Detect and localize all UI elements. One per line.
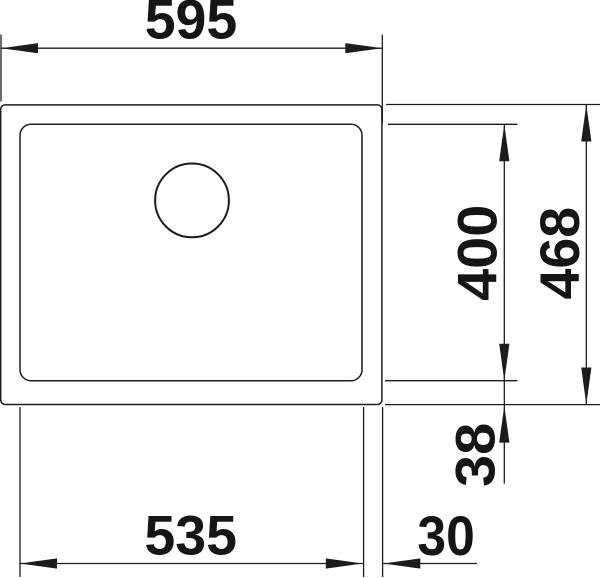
- svg-text:468: 468: [529, 207, 591, 300]
- svg-text:400: 400: [446, 205, 508, 301]
- svg-text:38: 38: [445, 423, 507, 487]
- svg-text:595: 595: [145, 0, 238, 51]
- svg-text:30: 30: [417, 505, 474, 567]
- svg-text:535: 535: [144, 505, 237, 567]
